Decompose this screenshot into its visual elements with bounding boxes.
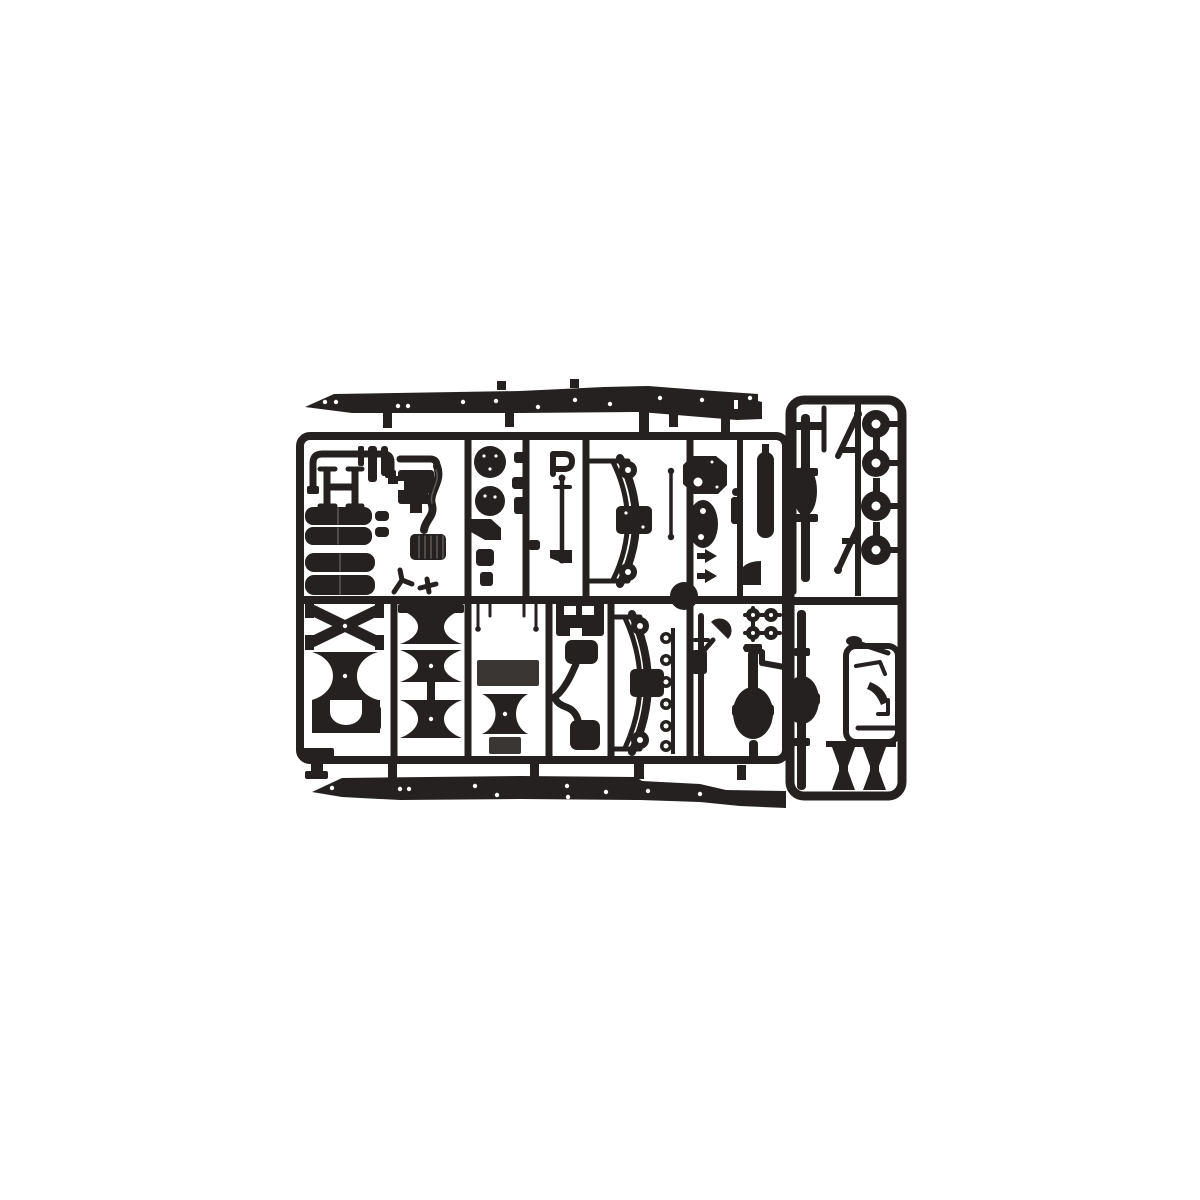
rail-tab xyxy=(570,379,579,388)
plate-hole xyxy=(698,534,704,540)
cell-leaf-spring-rear xyxy=(614,614,672,752)
axle-nub xyxy=(794,648,810,656)
wishbone-part xyxy=(394,570,412,592)
cover-bolt-hole xyxy=(716,486,719,489)
rail-tab xyxy=(497,381,506,390)
teardrop-lever xyxy=(867,682,888,705)
shackle-hole xyxy=(625,569,631,575)
shackle-hole xyxy=(637,737,643,743)
rail-sprue-gate xyxy=(737,765,746,780)
x-member-end xyxy=(305,635,314,650)
fuel-tank-pair-lower xyxy=(305,553,375,595)
runner-clip-part xyxy=(514,452,526,463)
spool-hole xyxy=(343,674,347,678)
wheel-center-hole xyxy=(872,502,881,511)
hub-hole xyxy=(751,631,755,635)
hub-hole xyxy=(769,613,773,617)
bent-rod xyxy=(856,662,885,674)
clamp-bolt-hole xyxy=(641,525,644,528)
wedge-runner xyxy=(826,741,896,747)
axle-top-flange xyxy=(744,644,762,652)
rivet-hole xyxy=(461,400,465,404)
runner-clip-part xyxy=(528,540,540,550)
air-tank-disc xyxy=(474,446,506,478)
cell-rear-axle xyxy=(692,608,784,761)
steering-arm-boss xyxy=(759,496,771,508)
rivet-hole xyxy=(330,786,334,790)
rivet-hole xyxy=(573,398,577,402)
shackle-hole xyxy=(637,623,643,629)
rail-sprue-gate xyxy=(383,412,392,428)
rail-sprue-gate xyxy=(505,412,514,427)
cell-crossmembers-left xyxy=(300,603,384,779)
shackle-hole xyxy=(625,467,631,473)
engine-inlet-pipe xyxy=(400,459,437,466)
steering-arm-stub xyxy=(762,444,769,454)
model-kit-sprue-photo: Product photograph of a single injection… xyxy=(0,0,1200,1200)
cell-leaf-spring-front xyxy=(590,458,698,610)
wheel-stub xyxy=(873,522,880,536)
rivet-hole xyxy=(536,405,540,409)
rivet-hole xyxy=(495,793,499,797)
wheel-disc-column xyxy=(861,410,902,565)
wire-bracket xyxy=(478,602,536,628)
x-type-crossmember xyxy=(305,603,384,650)
ring-hole xyxy=(664,636,669,641)
rivet-hole xyxy=(565,784,569,788)
spring-hanger-wedge xyxy=(863,747,886,790)
round-knob-part xyxy=(670,582,698,610)
ring-hole xyxy=(664,702,669,707)
spool-connector-stub xyxy=(427,682,435,700)
axle-stub xyxy=(794,514,818,522)
rod-ball-end xyxy=(854,410,862,418)
top-frame-rail xyxy=(305,379,762,438)
rivet-hole xyxy=(566,795,570,799)
hatchet-head xyxy=(711,618,732,639)
cover-hole xyxy=(694,478,703,487)
axle-banjo-arms xyxy=(786,693,820,705)
wheel-stub xyxy=(873,478,880,492)
lever-part xyxy=(420,579,436,592)
rivet-hole xyxy=(396,404,400,408)
spool-crossmember xyxy=(400,610,462,644)
x-member-end xyxy=(305,603,314,618)
rivet-hole xyxy=(698,792,702,796)
cell-mufflers xyxy=(553,598,604,750)
rod-ball-end xyxy=(668,468,674,474)
runner-clip-part xyxy=(512,477,527,489)
rivet-hole xyxy=(407,787,411,791)
rod-ball-end xyxy=(834,566,842,574)
front-axle-assembly xyxy=(790,408,862,592)
rivet-hole xyxy=(646,789,650,793)
small-plate xyxy=(489,737,521,754)
axle-nub xyxy=(792,738,810,746)
rivet-hole xyxy=(700,398,704,402)
tank-port-hole xyxy=(494,454,497,457)
ring-hole xyxy=(664,680,669,685)
mounting-bracket xyxy=(471,519,501,540)
rivet-hole xyxy=(494,399,498,403)
p-shaped-bracket xyxy=(553,454,572,474)
tank-end-cap xyxy=(375,511,389,521)
axle-shaft-lower xyxy=(749,740,758,759)
runner-clip-part xyxy=(514,497,526,514)
hatchet-lever xyxy=(700,618,732,655)
wheel-stub xyxy=(873,436,880,450)
rod-ball-end xyxy=(668,534,674,540)
axle-t-bar xyxy=(790,422,826,430)
spool-hole xyxy=(503,712,507,716)
connector-stub xyxy=(842,538,858,544)
steering-arm-boss xyxy=(759,466,771,478)
connector-stub xyxy=(840,447,858,453)
cell-spool-crossmembers xyxy=(398,604,464,738)
small-levers-loop xyxy=(846,636,898,742)
spring-center-clamp xyxy=(630,669,664,697)
x-member-end xyxy=(375,635,384,650)
air-tank-disc xyxy=(475,486,505,516)
axle-stub xyxy=(794,468,818,476)
photo-canvas: Product photograph of a single injection… xyxy=(0,0,1200,1200)
cell-cover-plates xyxy=(683,444,774,585)
mounting-plate xyxy=(477,660,539,686)
frame-rail-body xyxy=(305,386,762,420)
runner-bracket xyxy=(731,497,742,524)
ring-hole xyxy=(664,724,669,729)
spring-center-clamp xyxy=(616,506,652,534)
rivet-slot xyxy=(734,400,738,409)
runner-bracket-boss xyxy=(732,488,740,496)
tank-port-hole xyxy=(483,494,486,497)
hub-disc-cluster xyxy=(745,608,780,640)
spring-hanger-wedges xyxy=(826,741,896,790)
h-bracket-bars xyxy=(327,470,355,505)
spool-hole xyxy=(429,664,433,668)
x-member-end xyxy=(375,603,384,618)
wheel-center-hole xyxy=(872,420,881,429)
muffler-elbow-pipe xyxy=(556,700,578,720)
tank-port-hole xyxy=(482,454,485,457)
right-sprue-frame xyxy=(785,400,902,796)
rivet-hole xyxy=(406,404,410,408)
axle-banjo-arms xyxy=(732,704,774,717)
rivet-hole xyxy=(398,787,402,791)
differential-cover-plate xyxy=(683,456,727,494)
u-tube-foot xyxy=(307,486,319,494)
rivet-hole xyxy=(658,396,662,400)
cell-air-tanks xyxy=(471,446,540,586)
muffler-elbow-pipe xyxy=(553,664,576,698)
frame-rail-body xyxy=(312,776,786,808)
rod-ball-end xyxy=(559,475,566,482)
flat-slat-part xyxy=(368,446,377,482)
flat-slat-part xyxy=(381,446,388,476)
steering-arm-part xyxy=(757,452,774,538)
gusset-part xyxy=(369,706,381,730)
rivet-hole xyxy=(748,396,752,400)
cell-fuel-tanks-engine xyxy=(305,446,446,595)
rail-sprue-gate xyxy=(669,411,678,427)
beam-hole xyxy=(564,606,576,615)
ring-hole xyxy=(664,658,669,663)
small-wishbone-parts xyxy=(394,570,436,592)
x-member-hole xyxy=(343,624,347,628)
small-bracket xyxy=(476,549,494,566)
spring-hanger-wedge xyxy=(832,747,855,790)
hub-hole xyxy=(751,613,755,617)
arrow-clip-part xyxy=(697,549,717,563)
clamp-bolt-hole xyxy=(624,511,627,514)
bellows-body xyxy=(410,534,446,560)
muffler-canister xyxy=(570,720,600,750)
rivet-hole xyxy=(608,402,612,406)
oval-access-plate xyxy=(688,500,718,548)
flat-slat-part xyxy=(358,446,364,466)
muffler-canister xyxy=(565,640,598,664)
beam-notch xyxy=(570,628,582,636)
engine-block-notch xyxy=(398,481,404,490)
ribbed-bellows xyxy=(410,534,446,560)
wire-bracket-end xyxy=(475,626,481,632)
rivet-hole xyxy=(323,400,327,404)
small-bracket xyxy=(480,572,493,586)
ring-hole xyxy=(664,744,669,749)
wheel-center-hole xyxy=(872,459,881,468)
wire-bracket-end xyxy=(533,626,539,632)
fuel-tank-pair-upper xyxy=(305,507,389,545)
cell-chassis-plates xyxy=(475,602,539,754)
tank-end-cap xyxy=(375,527,389,537)
plate-hole xyxy=(700,508,706,514)
t-part-base xyxy=(305,771,328,779)
foot-bracket xyxy=(550,550,572,563)
cover-bolt-hole xyxy=(711,461,714,464)
engine-block-tab xyxy=(410,504,422,513)
spool-hole xyxy=(429,717,433,721)
wheel-center-hole xyxy=(872,546,881,555)
rivet-hole xyxy=(334,400,338,404)
tank-port-hole xyxy=(488,467,491,470)
h-shaped-bracket xyxy=(320,469,362,506)
rivet-hole xyxy=(473,784,477,788)
beam-hole xyxy=(582,606,594,615)
hub-hole xyxy=(769,631,773,635)
cell-linkage-rods xyxy=(550,454,572,564)
tank-port-hole xyxy=(493,495,496,498)
rail-sprue-gate xyxy=(388,763,397,778)
arrow-clip-part xyxy=(697,569,717,583)
rivet-hole xyxy=(604,790,608,794)
